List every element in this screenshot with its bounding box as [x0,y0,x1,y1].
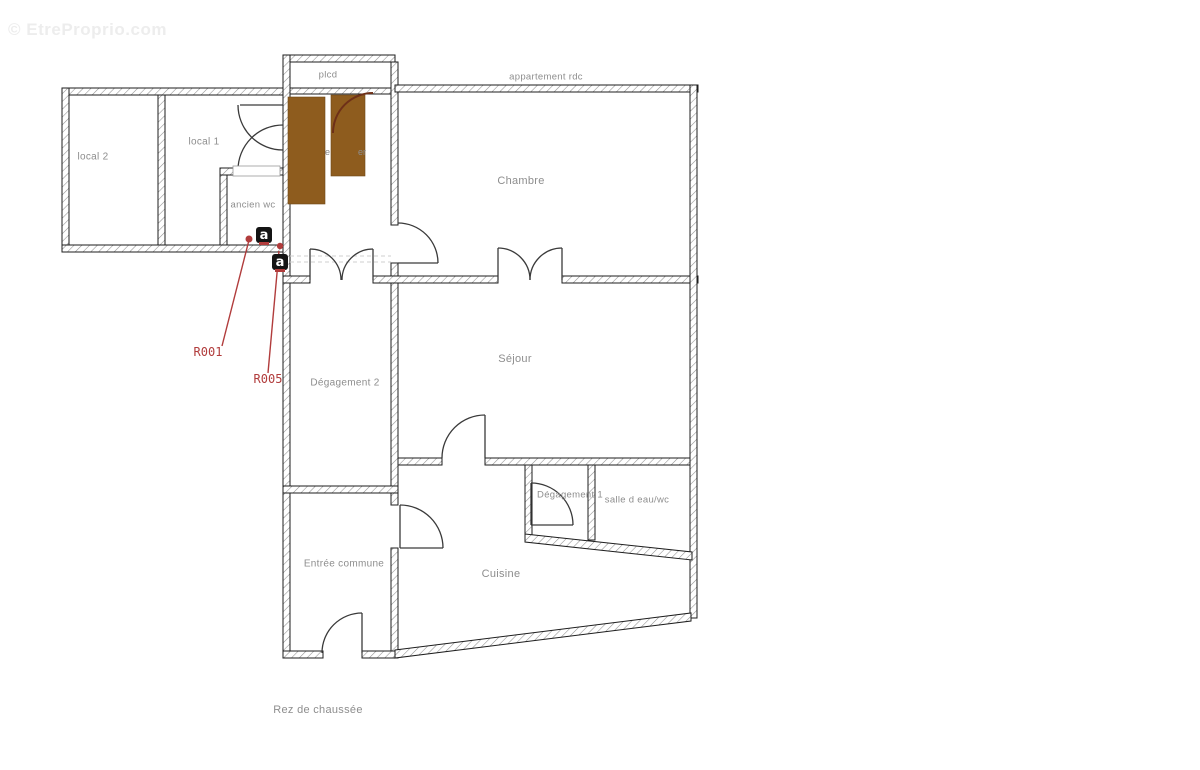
marker-a-1-underline [259,242,269,245]
room-label-plcd: plcd [319,70,338,81]
stair-label-fragment-2: er [358,147,366,157]
room-label-ancien-wc: ancien wc [231,200,276,211]
marker-a-1: a [256,227,272,243]
marker-a-2-letter: a [276,256,285,269]
area-label-appartement-rdc: appartement rdc [509,72,583,83]
floor-plan-page: © EtreProprio.com [0,0,1200,770]
marker-a-1-letter: a [260,229,269,242]
room-label-salle-eau-wc: salle d eau/wc [605,495,669,506]
threshold-dashes [290,256,391,262]
annotation-r001: R001 [194,345,223,359]
stair-label-fragment-1: e [325,147,330,157]
floor-title: Rez de chaussée [273,704,363,716]
room-label-local1: local 1 [188,137,219,148]
room-label-local2: local 2 [77,152,108,163]
room-label-sejour: Séjour [498,353,532,365]
marker-a-2-underline [275,269,285,272]
floorplan-drawing: e er [0,0,1200,770]
marker-a-2: a [272,254,288,270]
room-label-degagement2: Dégagement 2 [310,378,379,389]
room-label-entree-commune: Entrée commune [304,559,384,570]
room-label-cuisine: Cuisine [482,568,521,580]
annotation-r005: R005 [254,372,283,386]
room-label-degagement1: Dégagement 1 [537,490,603,501]
room-label-chambre: Chambre [497,175,544,187]
